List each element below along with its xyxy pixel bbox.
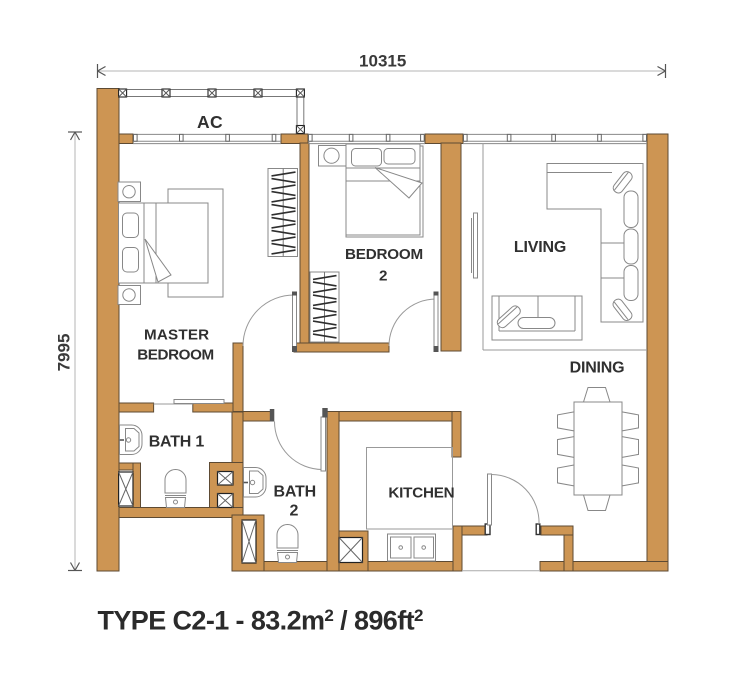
svg-text:7995: 7995 <box>55 334 74 372</box>
svg-text:10315: 10315 <box>359 52 406 71</box>
svg-text:BEDROOM: BEDROOM <box>345 246 423 263</box>
svg-text:LIVING: LIVING <box>514 239 566 256</box>
svg-text:BATH: BATH <box>273 484 315 501</box>
svg-text:2: 2 <box>379 267 387 284</box>
svg-text:BEDROOM: BEDROOM <box>137 347 214 364</box>
svg-text:DINING: DINING <box>570 360 625 377</box>
svg-text:AC: AC <box>197 112 223 132</box>
svg-text:TYPE C2-1 - 83.2m2 / 896ft2: TYPE C2-1 - 83.2m2 / 896ft2 <box>98 606 424 636</box>
svg-text:KITCHEN: KITCHEN <box>388 485 454 502</box>
svg-text:BATH 1: BATH 1 <box>149 434 205 451</box>
svg-text:MASTER: MASTER <box>144 327 209 344</box>
svg-text:2: 2 <box>290 503 299 520</box>
